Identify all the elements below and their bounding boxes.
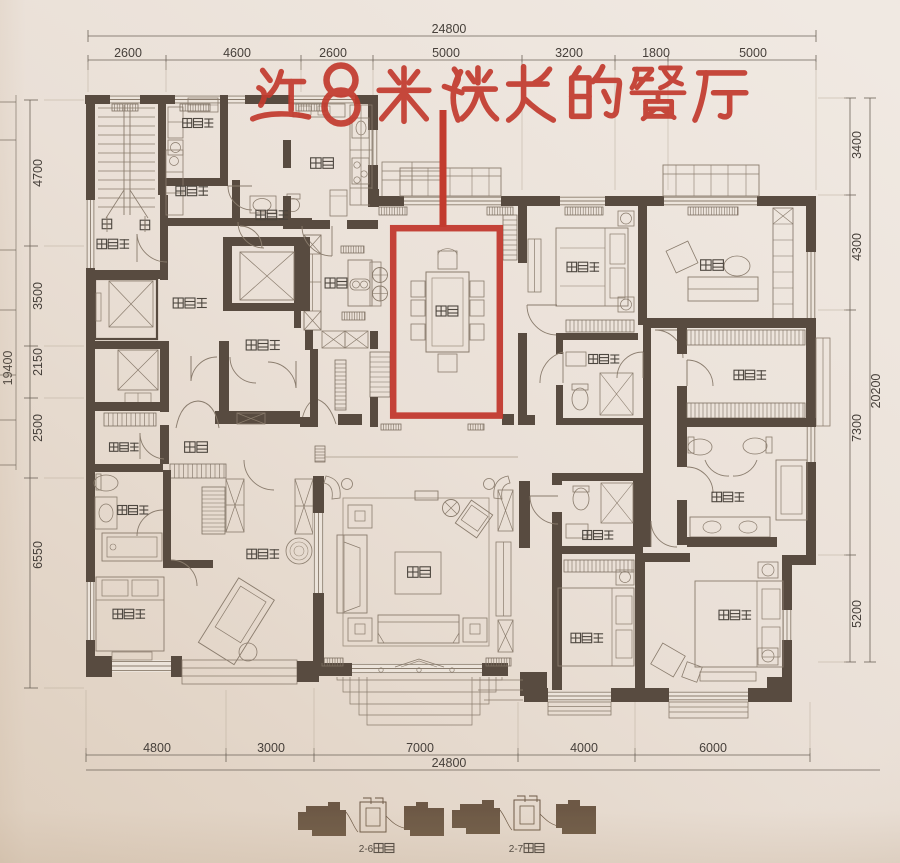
- svg-text:24800: 24800: [432, 756, 467, 770]
- svg-text:3500: 3500: [31, 282, 45, 310]
- svg-text:5200: 5200: [850, 600, 864, 628]
- svg-text:20200: 20200: [869, 374, 883, 409]
- svg-text:4600: 4600: [223, 46, 251, 60]
- svg-text:6550: 6550: [31, 541, 45, 569]
- svg-text:4300: 4300: [850, 233, 864, 261]
- svg-text:3000: 3000: [257, 741, 285, 755]
- svg-text:4000: 4000: [570, 741, 598, 755]
- svg-text:5000: 5000: [432, 46, 460, 60]
- svg-text:3400: 3400: [850, 131, 864, 159]
- svg-text:2500: 2500: [31, 414, 45, 442]
- svg-text:1800: 1800: [642, 46, 670, 60]
- svg-text:5000: 5000: [739, 46, 767, 60]
- svg-text:3200: 3200: [555, 46, 583, 60]
- svg-text:24800: 24800: [432, 22, 467, 36]
- svg-text:7000: 7000: [406, 741, 434, 755]
- svg-text:2150: 2150: [31, 348, 45, 376]
- svg-text:4700: 4700: [31, 159, 45, 187]
- svg-text:2600: 2600: [319, 46, 347, 60]
- svg-text:7300: 7300: [850, 414, 864, 442]
- svg-text:4800: 4800: [143, 741, 171, 755]
- svg-text:6000: 6000: [699, 741, 727, 755]
- svg-text:2600: 2600: [114, 46, 142, 60]
